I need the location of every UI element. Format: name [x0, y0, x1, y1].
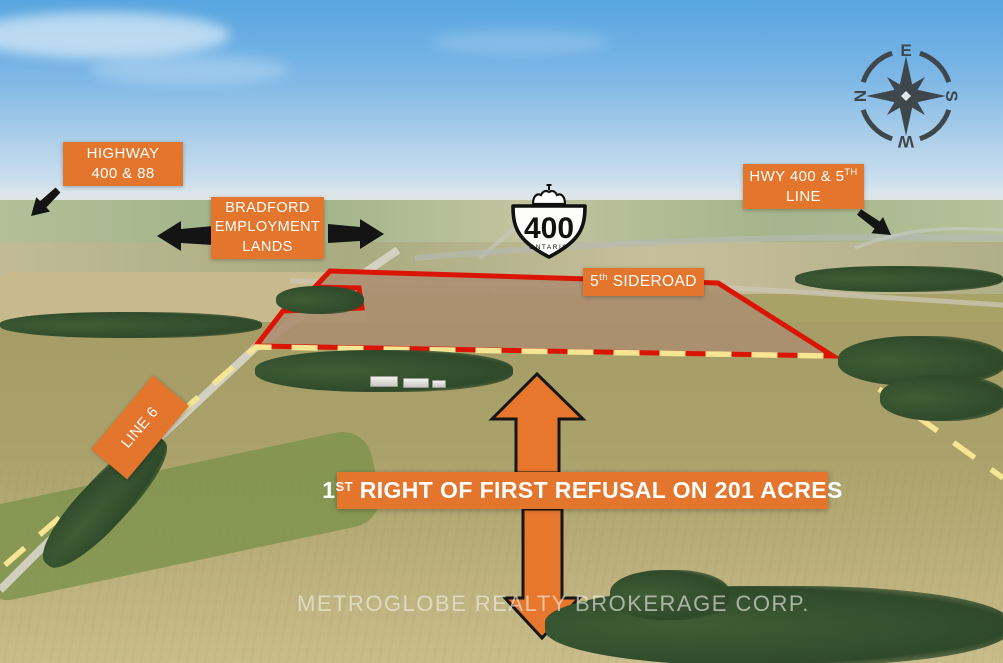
callout-sup: TH: [844, 167, 857, 177]
barn: [370, 376, 398, 387]
barn: [403, 378, 429, 388]
banner-number: 1: [322, 477, 335, 504]
callout-line: LINE: [743, 187, 864, 207]
watermark: METROGLOBE REALTY BROKERAGE CORP.: [297, 591, 727, 617]
shield-route-number: 400: [524, 212, 574, 245]
highway-400-shield: 400 ONTARIO: [506, 184, 592, 264]
banner-sup: ST: [336, 479, 353, 494]
callout-sup: th: [599, 272, 608, 283]
compass-rose: E S W N: [846, 36, 966, 156]
callout-5th-sideroad: 5th SIDEROAD: [583, 268, 704, 296]
callout-text: HWY 400 & 5: [749, 168, 844, 185]
compass-letter-top: E: [900, 41, 911, 60]
callout-line: EMPLOYMENT: [211, 218, 324, 237]
callout-bradford-employment-lands: BRADFORD EMPLOYMENT LANDS: [211, 197, 324, 259]
shield-region: ONTARIO: [529, 244, 569, 251]
compass-letter-bottom: W: [897, 132, 914, 151]
compass-letter-right: S: [942, 90, 961, 101]
callout-line: LANDS: [211, 238, 324, 257]
arrow-to-hwy400-5th-icon: [857, 209, 891, 235]
callout-hwy400-5th-line: HWY 400 & 5TH LINE: [743, 164, 864, 209]
callout-line: 5th SIDEROAD: [583, 272, 704, 293]
callout-text: 5: [590, 273, 599, 290]
compass-letter-left: N: [851, 90, 870, 102]
orange-up-arrow-icon: [492, 374, 583, 473]
barn: [432, 380, 446, 388]
callout-highway-400-88: HIGHWAY 400 & 88: [63, 142, 183, 186]
aerial-photo: HIGHWAY 400 & 88 BRADFORD EMPLOYMENT LAN…: [0, 0, 1003, 663]
property-field-fill: [256, 271, 833, 356]
banner-right-of-first-refusal: 1ST RIGHT OF FIRST REFUSAL ON 201 ACRES: [337, 472, 828, 509]
arrow-to-highway-400-88-icon: [31, 188, 60, 217]
crown-icon: [533, 191, 565, 204]
banner-text: RIGHT OF FIRST REFUSAL ON 201 ACRES: [353, 477, 843, 504]
arrow-bradford-left-icon: [157, 221, 213, 251]
callout-line: 400 & 88: [63, 164, 183, 184]
callout-line: BRADFORD: [211, 199, 324, 218]
tree-band: [880, 375, 1003, 421]
arrow-bradford-right-icon: [328, 219, 384, 249]
crown-cross-icon: [547, 184, 552, 190]
tree-cluster: [276, 286, 364, 314]
callout-line: HIGHWAY: [63, 144, 183, 164]
callout-line: HWY 400 & 5TH: [743, 166, 864, 187]
callout-text: SIDEROAD: [608, 273, 697, 290]
